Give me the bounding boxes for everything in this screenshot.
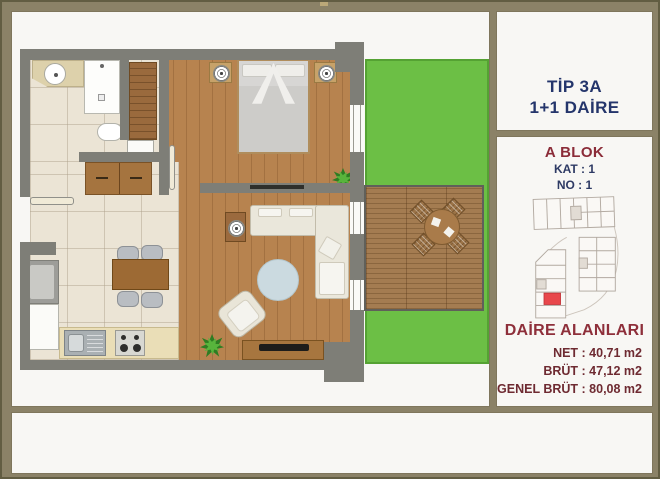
tv-screen	[259, 344, 309, 351]
page-frame: TİP 3A 1+1 DAİRE A BLOK KAT : 1 NO : 1	[0, 0, 660, 479]
dining-chair	[117, 291, 139, 307]
site-plan-map	[527, 196, 623, 320]
highlighted-unit	[544, 293, 561, 304]
gross-area: BRÜT : 47,12 m2	[497, 362, 642, 380]
right-wall-seg	[350, 152, 364, 202]
left-wall-upper	[20, 49, 30, 197]
entry-door-leaf	[30, 197, 74, 205]
wall-tv-niche	[250, 185, 304, 189]
sofa-cushion	[258, 208, 282, 217]
bedroom-door-leaf	[169, 145, 175, 190]
bedroom-window	[350, 105, 364, 152]
bathroom-sink	[44, 63, 66, 85]
entry-wall-stub	[30, 242, 56, 255]
bathroom-bedroom-wall	[159, 60, 169, 195]
sink-bowl	[68, 334, 84, 352]
bottom-wall	[20, 360, 325, 370]
living-slider-window	[350, 202, 364, 234]
frame-notch	[320, 2, 328, 6]
duvet	[239, 86, 308, 152]
dresser-handle	[130, 177, 142, 179]
block-title: A BLOK	[497, 144, 652, 162]
napkin	[431, 217, 441, 227]
bottom-strip-panel	[12, 413, 652, 473]
side-table-lamp	[228, 220, 245, 237]
unit-number: NO : 1	[497, 178, 652, 194]
bathroom-bottom-wall	[79, 152, 159, 162]
dresser-divider	[119, 163, 120, 194]
sink-drain	[54, 73, 58, 77]
net-area: NET : 40,71 m2	[497, 344, 642, 362]
kitchen-sink-unit	[64, 330, 106, 356]
tub-drain	[98, 94, 105, 101]
floor-number: KAT : 1	[497, 162, 652, 178]
nightstand-lamp	[318, 65, 335, 82]
bed	[237, 59, 310, 154]
stove	[115, 330, 145, 356]
dining-table	[112, 259, 169, 290]
burner	[134, 335, 139, 340]
bathroom-tall-cabinet	[129, 62, 157, 140]
dresser-handle	[96, 177, 108, 179]
dining-chair	[141, 292, 163, 308]
living-slider-window	[350, 280, 364, 310]
round-rug	[257, 259, 299, 301]
burner	[120, 344, 128, 352]
right-wall-seg	[350, 72, 364, 105]
info-panel: A BLOK KAT : 1 NO : 1	[497, 137, 652, 406]
sofa-cushion	[319, 262, 345, 295]
left-wall-lower	[20, 242, 30, 360]
type-panel: TİP 3A 1+1 DAİRE	[497, 12, 652, 130]
areas-title: DAİRE ALANLARI	[497, 322, 652, 340]
nightstand-lamp	[213, 65, 230, 82]
apartment-type: TİP 3A	[547, 76, 602, 97]
burner	[121, 335, 126, 340]
burner	[133, 344, 141, 352]
right-wall-seg	[350, 234, 364, 280]
kitchen-base-cabinet	[25, 304, 59, 350]
living-plant	[200, 334, 224, 358]
top-wall	[20, 49, 342, 60]
floor-plan-panel	[12, 12, 489, 406]
top-right-column	[335, 42, 364, 72]
total-gross-area: GENEL BRÜT : 80,08 m2	[497, 380, 642, 398]
fridge	[25, 260, 59, 304]
right-wall-seg	[350, 310, 364, 360]
tub-cabinet-wall	[120, 60, 129, 140]
fridge-front	[30, 265, 54, 299]
apartment-layout: 1+1 DAİRE	[529, 97, 619, 118]
terrace-table	[424, 209, 460, 245]
bathtub	[84, 60, 120, 114]
tub-faucet	[100, 64, 104, 68]
hall-dresser	[85, 162, 152, 195]
area-values: NET : 40,71 m2 BRÜT : 47,12 m2 GENEL BRÜ…	[497, 344, 652, 398]
sink-drainer	[87, 334, 103, 352]
sofa-cushion	[289, 208, 313, 217]
napkin	[443, 226, 454, 237]
